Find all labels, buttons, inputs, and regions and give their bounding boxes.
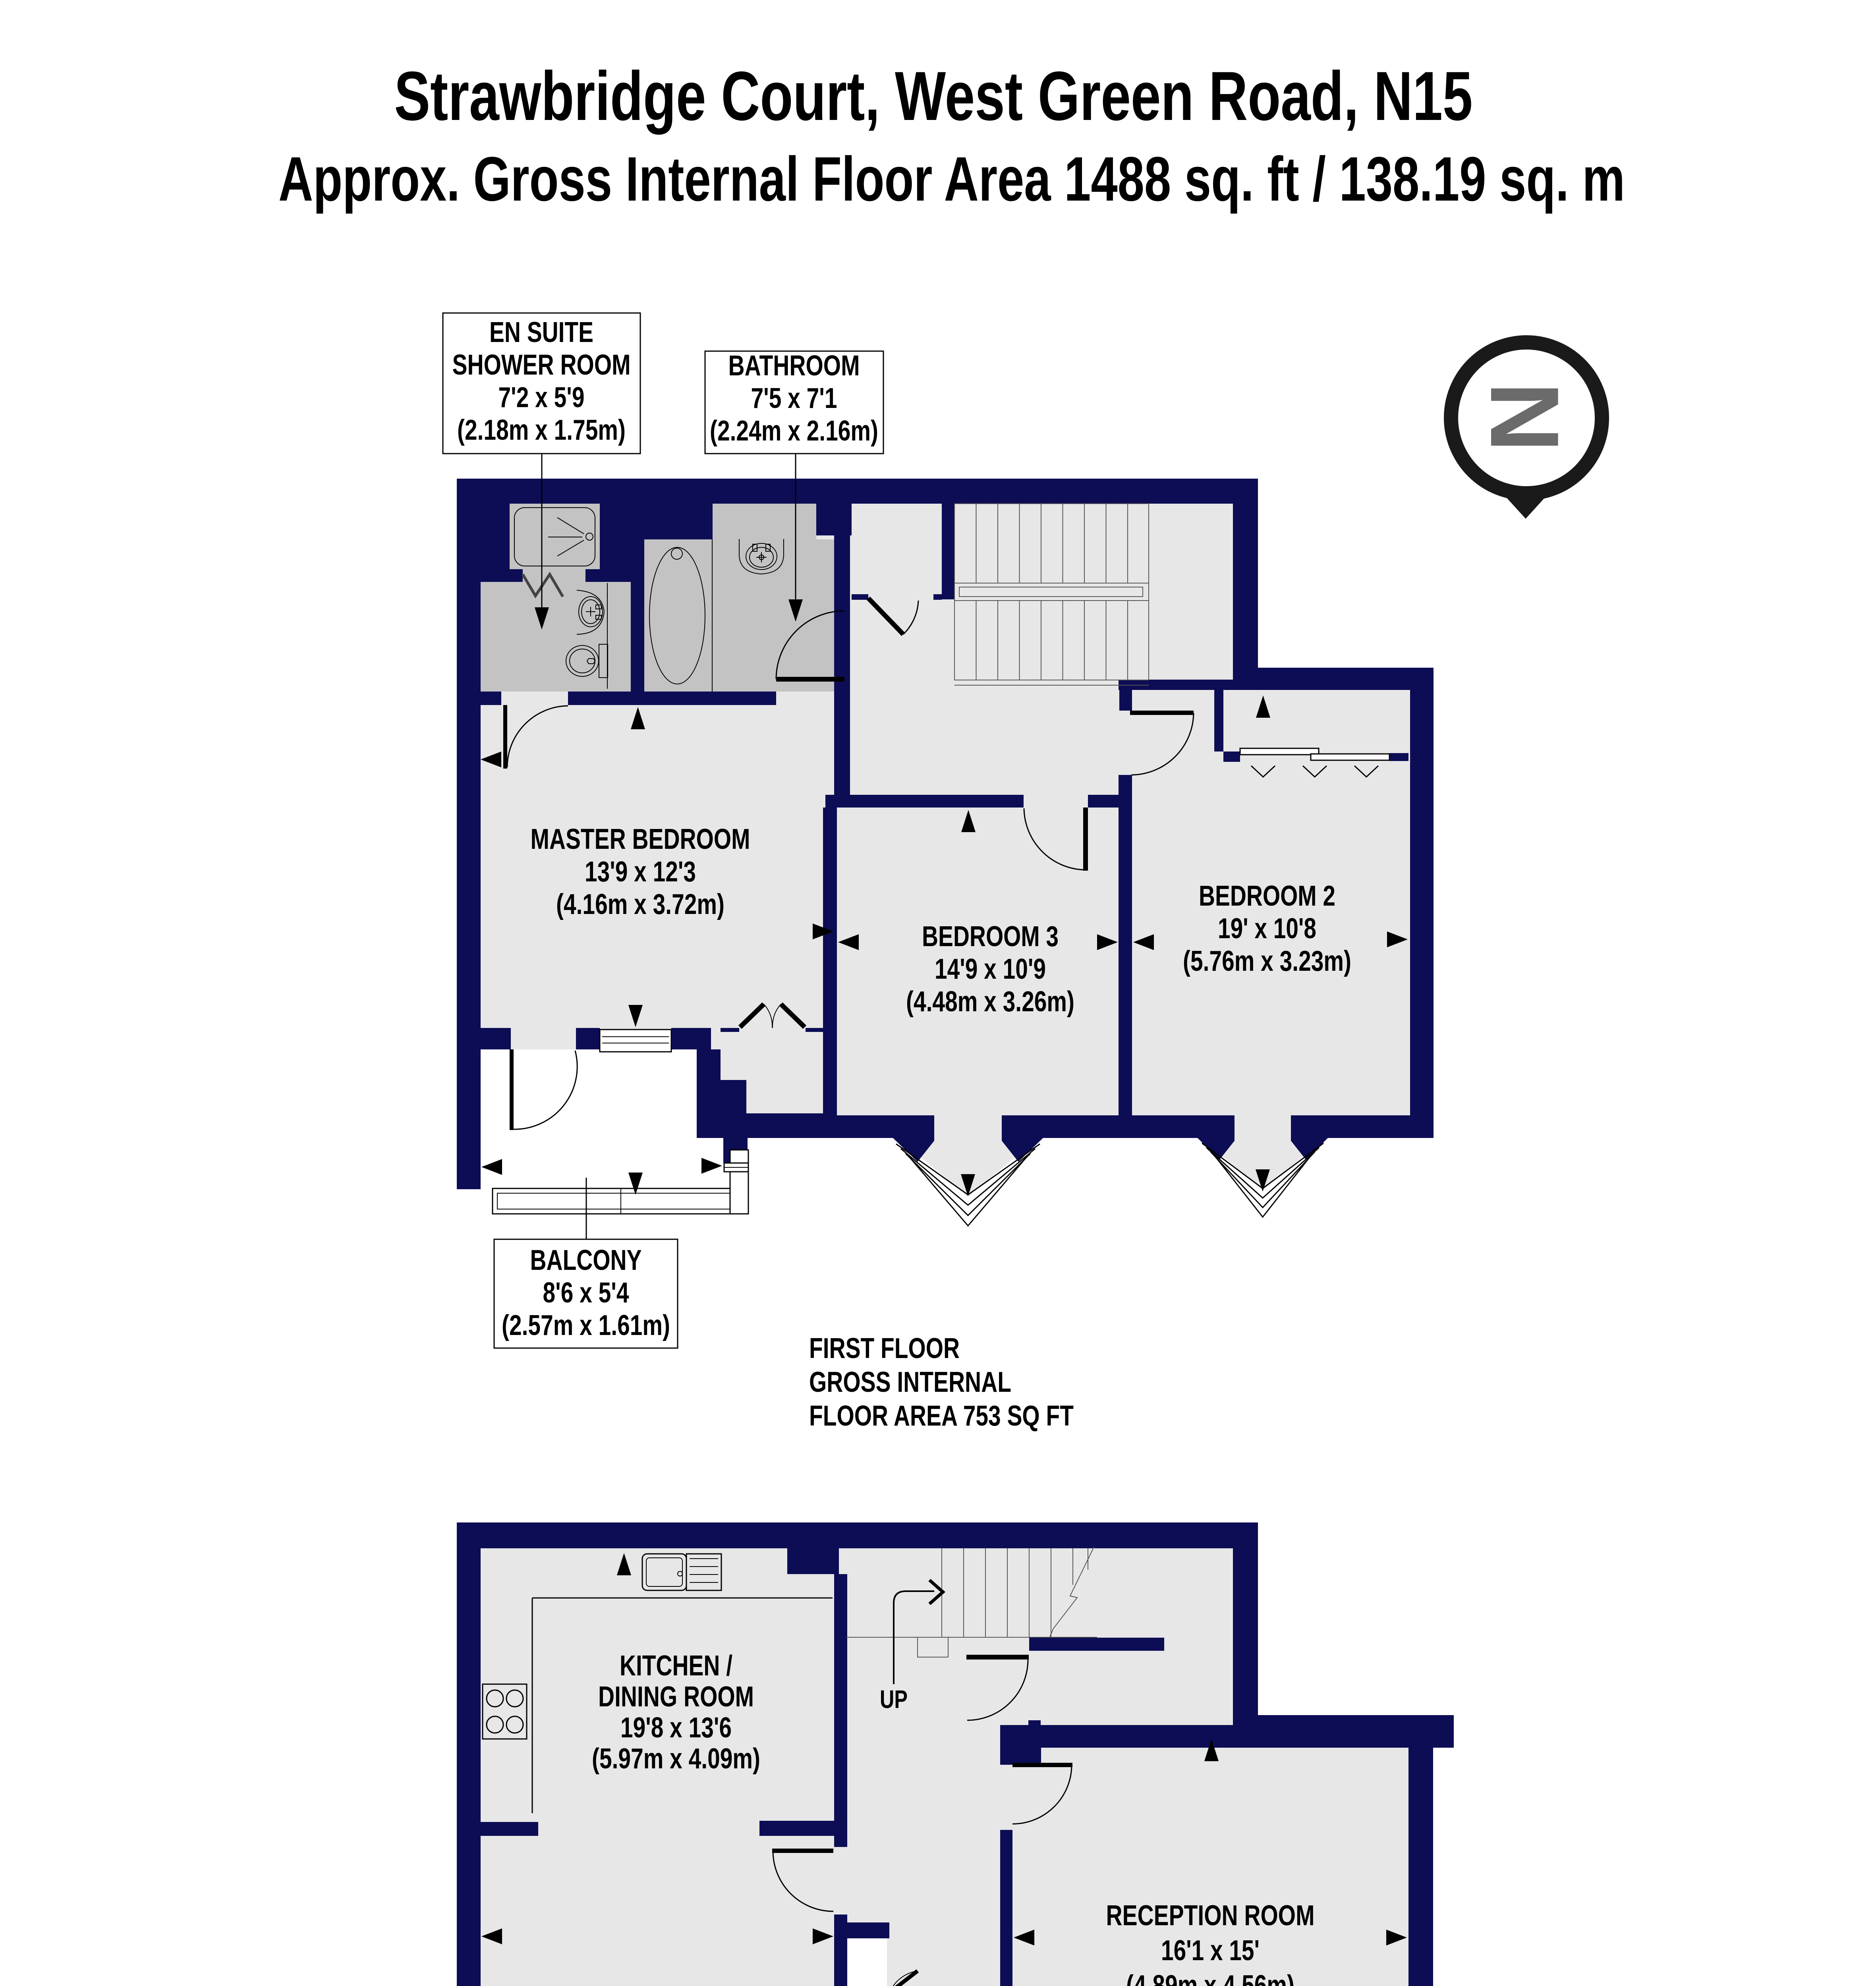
svg-text:14'9 x 10'9: 14'9 x 10'9 [935, 953, 1046, 985]
svg-text:19'8 x 13'6: 19'8 x 13'6 [620, 1712, 732, 1744]
svg-text:RECEPTION ROOM: RECEPTION ROOM [1106, 1900, 1315, 1932]
svg-text:(4.89m x 4.56m): (4.89m x 4.56m) [1126, 1970, 1294, 1986]
svg-text:(2.18m x 1.75m): (2.18m x 1.75m) [457, 414, 626, 446]
svg-text:GROSS INTERNAL: GROSS INTERNAL [809, 1366, 1011, 1398]
svg-text:Strawbridge Court, West Green: Strawbridge Court, West Green Road, N15 [394, 58, 1473, 135]
svg-text:8'6 x 5'4: 8'6 x 5'4 [543, 1277, 629, 1309]
svg-text:FIRST FLOOR: FIRST FLOOR [809, 1333, 960, 1364]
svg-text:19' x 10'8: 19' x 10'8 [1218, 913, 1316, 945]
svg-text:MASTER BEDROOM: MASTER BEDROOM [531, 823, 750, 855]
svg-text:7'5 x 7'1: 7'5 x 7'1 [751, 383, 837, 414]
svg-text:Approx. Gross Internal Floor A: Approx. Gross Internal Floor Area 1488 s… [278, 144, 1625, 214]
svg-text:SHOWER ROOM: SHOWER ROOM [452, 349, 631, 381]
svg-text:7'2 x 5'9: 7'2 x 5'9 [498, 382, 585, 413]
svg-text:N: N [1470, 382, 1579, 452]
svg-text:(2.57m x 1.61m): (2.57m x 1.61m) [502, 1310, 670, 1341]
svg-text:BEDROOM 2: BEDROOM 2 [1199, 880, 1335, 912]
svg-text:FLOOR AREA 753 SQ FT: FLOOR AREA 753 SQ FT [809, 1400, 1074, 1432]
svg-text:13'9 x 12'3: 13'9 x 12'3 [585, 856, 696, 888]
svg-text:DINING ROOM: DINING ROOM [598, 1681, 754, 1713]
svg-text:BALCONY: BALCONY [530, 1244, 642, 1276]
svg-text:(4.48m x 3.26m): (4.48m x 3.26m) [906, 986, 1074, 1018]
svg-text:(5.76m x 3.23m): (5.76m x 3.23m) [1183, 945, 1351, 977]
svg-text:(5.97m x 4.09m): (5.97m x 4.09m) [592, 1743, 760, 1775]
svg-text:BEDROOM 3: BEDROOM 3 [922, 921, 1059, 952]
svg-text:(2.24m x 2.16m): (2.24m x 2.16m) [710, 415, 878, 447]
svg-text:BATHROOM: BATHROOM [728, 350, 860, 382]
svg-text:UP: UP [880, 1685, 908, 1714]
svg-text:EN SUITE: EN SUITE [489, 317, 593, 348]
svg-text:(4.16m x 3.72m): (4.16m x 3.72m) [556, 889, 725, 920]
svg-text:KITCHEN /: KITCHEN / [620, 1650, 732, 1682]
svg-text:16'1 x 15': 16'1 x 15' [1161, 1935, 1260, 1967]
